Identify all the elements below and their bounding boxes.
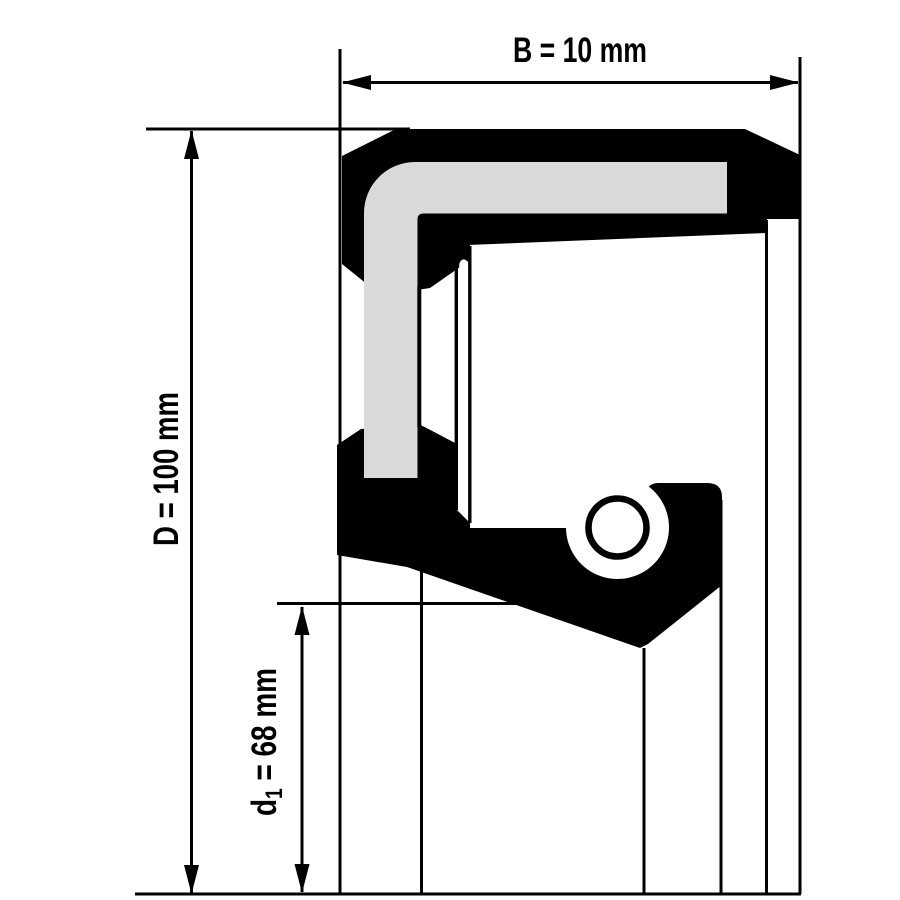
svg-text:B = 10 mm: B = 10 mm xyxy=(513,31,647,70)
svg-text:D = 100 mm: D = 100 mm xyxy=(147,392,186,546)
